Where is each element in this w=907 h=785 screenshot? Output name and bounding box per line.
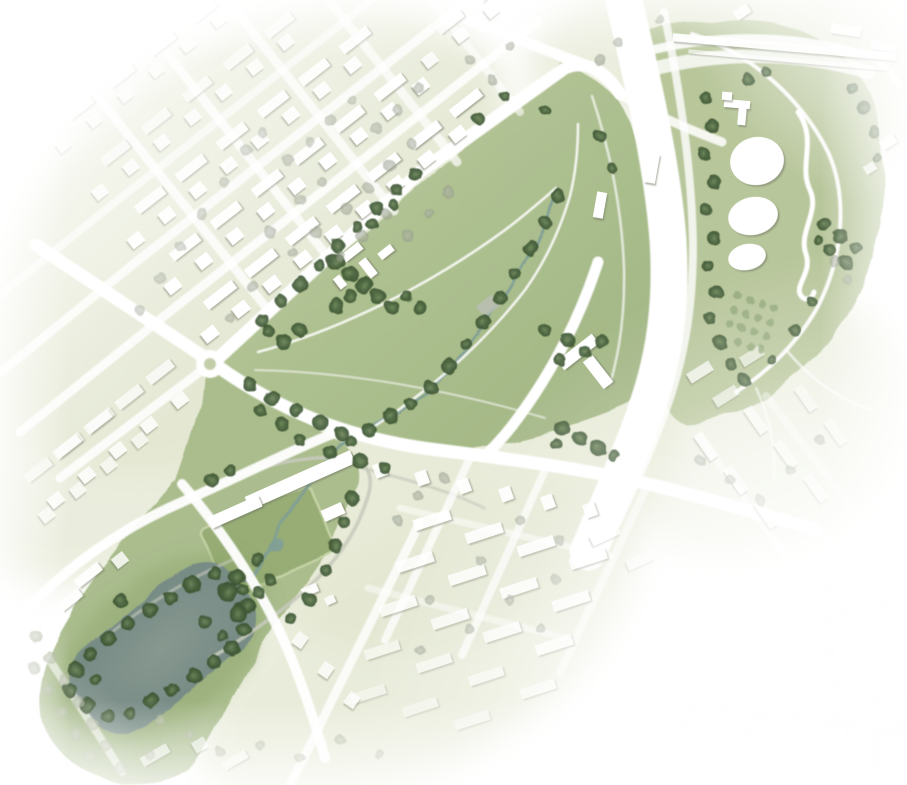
tree-symbol xyxy=(767,355,777,365)
tree-symbol xyxy=(561,333,575,347)
tree-symbol-gray xyxy=(310,226,322,238)
tree-symbol xyxy=(850,242,862,254)
tree-symbol xyxy=(264,390,280,406)
tree-symbol xyxy=(331,239,345,253)
building xyxy=(476,0,505,3)
tree-symbol-gray xyxy=(294,194,306,206)
tree-symbol-orchard xyxy=(738,324,746,332)
tree-symbol-gray xyxy=(829,256,841,268)
tree-symbol xyxy=(594,130,606,142)
site-plan-map xyxy=(0,0,907,785)
tree-symbol xyxy=(868,126,880,138)
tree-symbol-orchard xyxy=(746,296,754,304)
tree-symbol xyxy=(824,244,836,256)
tree-symbol xyxy=(709,285,723,299)
tree-symbol-light xyxy=(185,730,195,740)
building xyxy=(483,1,501,19)
tree-symbol-orchard xyxy=(754,314,762,322)
roundabout-island xyxy=(204,358,216,370)
tree-symbol xyxy=(705,119,719,133)
tree-symbol xyxy=(424,381,438,395)
tree-symbol-gray xyxy=(175,241,185,251)
tree-symbol-gray xyxy=(487,75,497,85)
tree-symbol xyxy=(323,445,337,459)
tree-symbol xyxy=(509,268,521,280)
tree-symbol-gray xyxy=(613,37,623,47)
building xyxy=(210,11,228,28)
tree-symbol-light xyxy=(255,740,265,750)
tree-symbol xyxy=(539,216,551,228)
tree-symbol xyxy=(408,167,422,181)
tree-symbol xyxy=(237,623,251,637)
tree-symbol xyxy=(124,707,136,719)
tree-symbol xyxy=(229,605,247,623)
tree-symbol xyxy=(472,112,484,124)
tree-symbol-gray xyxy=(225,313,235,323)
tree-symbol xyxy=(366,218,378,230)
tree-symbol xyxy=(413,301,427,315)
tree-symbol xyxy=(342,266,358,282)
tree-symbol xyxy=(551,189,565,203)
tree-symbol-light xyxy=(155,715,165,725)
tree-symbol xyxy=(345,491,359,505)
tree-symbol-gray xyxy=(257,127,267,137)
tree-symbol-light xyxy=(70,728,82,740)
tree-symbol-light xyxy=(295,753,305,763)
tree-symbol-gray xyxy=(340,202,352,214)
tree-symbol xyxy=(252,586,264,598)
tree-symbol xyxy=(164,591,178,605)
tree-symbol xyxy=(500,91,510,101)
tree-symbol-gray xyxy=(425,209,435,219)
tree-symbol xyxy=(707,231,721,245)
tree-symbol-gray xyxy=(317,177,327,187)
tree-symbol-orchard xyxy=(758,300,766,308)
tree-symbol-gray xyxy=(695,455,705,465)
tree-symbol xyxy=(312,414,328,430)
tree-symbol xyxy=(165,683,179,697)
tree-symbol-gray xyxy=(335,251,345,261)
tree-symbol-light xyxy=(215,747,225,757)
tree-symbol xyxy=(475,314,491,330)
tree-symbol-gray xyxy=(415,645,425,655)
tree-symbol-light xyxy=(145,750,155,760)
tree-symbol xyxy=(857,101,871,115)
tree-symbol xyxy=(338,516,350,528)
tree-symbol xyxy=(293,323,307,337)
tree-symbol-gray xyxy=(505,595,515,605)
tree-symbol xyxy=(275,417,289,431)
tree-symbol xyxy=(704,312,716,324)
tree-symbol xyxy=(343,289,357,303)
tree-symbol-orchard xyxy=(726,320,734,328)
tree-symbol xyxy=(284,612,296,624)
tree-symbol xyxy=(383,408,399,424)
tree-symbol-gray xyxy=(356,230,368,242)
tree-symbol xyxy=(554,354,566,366)
tree-symbol xyxy=(254,404,266,416)
tree-symbol xyxy=(738,374,750,386)
tree-symbol-gray xyxy=(465,55,475,65)
tree-symbol xyxy=(251,553,265,567)
tree-symbol xyxy=(224,640,240,656)
tree-symbol-gray xyxy=(219,177,229,187)
tree-symbol xyxy=(700,92,712,104)
tree-symbol xyxy=(218,582,238,602)
tree-symbol-orchard xyxy=(734,292,742,300)
tree-symbol xyxy=(817,217,831,231)
tree-symbol xyxy=(100,630,116,646)
tree-symbol xyxy=(742,74,754,86)
tree-symbol-gray xyxy=(407,139,417,149)
tree-symbol xyxy=(183,576,201,594)
tree-symbol xyxy=(761,67,771,77)
tree-symbol-gray xyxy=(287,247,297,257)
tree-symbol xyxy=(362,423,376,437)
tree-symbol-gray xyxy=(413,491,423,501)
tree-symbol-light xyxy=(42,684,54,696)
tree-symbol xyxy=(725,358,737,370)
building xyxy=(106,63,135,89)
tree-symbol xyxy=(313,259,325,271)
tree-symbol-gray xyxy=(154,272,166,284)
tree-symbol-orchard xyxy=(766,318,774,326)
tree-symbol-gray xyxy=(393,105,403,115)
tree-symbol xyxy=(90,674,102,686)
tree-symbol xyxy=(355,276,373,294)
tree-symbol xyxy=(441,358,457,374)
tree-symbol xyxy=(807,297,817,307)
tree-symbol xyxy=(121,617,135,631)
tree-symbol-gray xyxy=(324,114,336,126)
tree-symbol-orchard xyxy=(758,346,766,354)
tree-symbol xyxy=(813,235,823,245)
tree-symbol xyxy=(385,300,399,314)
tree-symbol-light xyxy=(56,706,68,718)
tree-symbol-gray xyxy=(465,625,475,635)
tree-symbol-gray xyxy=(475,555,485,565)
tree-symbol-orchard xyxy=(742,310,750,318)
tree-symbol-light xyxy=(58,674,70,686)
tree-symbol xyxy=(303,593,317,607)
tree-symbol-gray xyxy=(282,154,294,166)
tree-symbol xyxy=(872,153,882,163)
tree-symbol xyxy=(289,403,303,417)
tree-symbol xyxy=(713,335,727,349)
tree-symbol-gray xyxy=(785,465,795,475)
tree-symbol xyxy=(328,298,344,314)
tree-symbol xyxy=(832,228,848,244)
tree-symbol-gray xyxy=(384,160,396,172)
tree-symbol-gray xyxy=(381,209,391,219)
tree-symbol-light xyxy=(114,762,126,774)
tree-symbol xyxy=(700,204,712,216)
tree-symbol xyxy=(292,276,308,292)
tree-symbol-gray xyxy=(439,473,449,483)
tree-symbol xyxy=(68,662,84,678)
tree-symbol-gray xyxy=(755,495,765,505)
tree-symbol xyxy=(400,290,412,302)
tree-symbol-gray xyxy=(412,82,424,94)
tree-symbol xyxy=(370,289,386,305)
tree-symbol-gray xyxy=(425,595,435,605)
tree-symbol xyxy=(207,566,221,580)
tree-symbol xyxy=(595,335,609,349)
tree-symbol-gray xyxy=(594,54,606,66)
tree-symbol-light xyxy=(100,740,112,752)
tree-symbol xyxy=(329,539,343,553)
tree-symbol xyxy=(523,240,539,256)
tree-symbol xyxy=(460,338,472,350)
tree-symbol-orchard xyxy=(734,338,742,346)
tree-symbol xyxy=(607,163,617,173)
tree-symbol xyxy=(579,346,591,358)
tree-symbol xyxy=(207,655,221,669)
tree-symbol-gray xyxy=(305,137,315,147)
tree-symbol xyxy=(320,564,332,576)
tree-symbol xyxy=(262,325,274,337)
tree-symbol xyxy=(702,260,714,272)
tree-symbol xyxy=(550,438,562,450)
tree-symbol xyxy=(142,602,158,618)
tree-symbol xyxy=(540,105,550,115)
tree-symbol xyxy=(83,647,97,661)
tree-symbol xyxy=(698,148,710,160)
tree-symbol-gray xyxy=(442,186,454,198)
tree-symbol-gray xyxy=(555,535,565,545)
tree-symbol xyxy=(186,668,202,684)
tree-symbol xyxy=(389,200,399,210)
tree-symbol-gray xyxy=(393,515,403,525)
tree-symbol-gray xyxy=(370,122,382,134)
tree-symbol-light xyxy=(44,652,56,664)
tree-symbol xyxy=(352,453,368,469)
tree-symbol-gray xyxy=(402,230,414,242)
tree-symbol-gray xyxy=(725,475,735,485)
tree-symbol-light xyxy=(84,750,96,762)
tree-symbol-gray xyxy=(347,95,357,105)
tree-symbol-orchard xyxy=(770,304,778,312)
tree-symbol-gray xyxy=(135,305,145,315)
masterplan-svg xyxy=(0,0,907,785)
tree-symbol xyxy=(539,324,551,336)
tree-symbol xyxy=(276,334,292,350)
tree-symbol-gray xyxy=(505,41,515,51)
building xyxy=(737,107,747,126)
tree-symbol xyxy=(224,464,236,476)
tree-symbol-gray xyxy=(264,226,276,238)
tree-symbol-gray xyxy=(815,435,825,445)
tree-symbol xyxy=(379,462,391,474)
tree-symbol xyxy=(216,630,228,642)
tree-symbol xyxy=(839,255,853,269)
tree-symbol xyxy=(205,473,219,487)
tree-symbol xyxy=(608,450,620,462)
tree-symbol xyxy=(335,427,349,441)
tree-symbol-light xyxy=(30,630,42,642)
tree-symbol xyxy=(198,615,212,629)
tree-symbol-light xyxy=(335,735,345,745)
tree-symbol-gray xyxy=(655,15,665,25)
tree-symbol xyxy=(101,709,115,723)
tree-symbol xyxy=(573,431,587,445)
tree-symbol-gray xyxy=(196,208,208,220)
tree-symbol xyxy=(391,184,403,196)
tree-symbol-light xyxy=(72,696,84,708)
tree-symbol-gray xyxy=(515,515,525,525)
tree-symbol xyxy=(846,82,858,94)
tree-symbol xyxy=(243,378,257,392)
building xyxy=(722,92,733,101)
tree-symbol-gray xyxy=(246,280,258,292)
tree-symbol-gray xyxy=(551,575,561,585)
tree-symbol xyxy=(264,574,276,586)
tree-symbol xyxy=(255,313,269,327)
tree-symbol xyxy=(405,398,417,410)
tree-symbol xyxy=(113,593,127,607)
tree-symbol-orchard xyxy=(762,332,770,340)
tree-symbol xyxy=(493,291,507,305)
tree-symbol-gray xyxy=(843,275,853,285)
tree-symbol-light xyxy=(86,718,98,730)
tree-symbol xyxy=(143,692,159,708)
tree-symbol xyxy=(590,440,606,456)
tree-symbol xyxy=(294,434,306,446)
tree-symbol-gray xyxy=(363,183,373,193)
tree-symbol-orchard xyxy=(750,328,758,336)
tree-symbol xyxy=(707,175,721,189)
tree-symbol-light xyxy=(375,750,385,760)
tree-symbol xyxy=(789,324,801,336)
tree-symbol xyxy=(237,584,249,596)
tree-symbol-orchard xyxy=(730,306,738,314)
tree-symbol-gray xyxy=(535,623,545,633)
tree-symbol-light xyxy=(28,662,40,674)
tree-symbol xyxy=(554,420,570,436)
tree-symbol xyxy=(275,295,287,307)
tree-symbol-gray xyxy=(240,144,252,156)
tree-symbol-orchard xyxy=(746,342,754,350)
